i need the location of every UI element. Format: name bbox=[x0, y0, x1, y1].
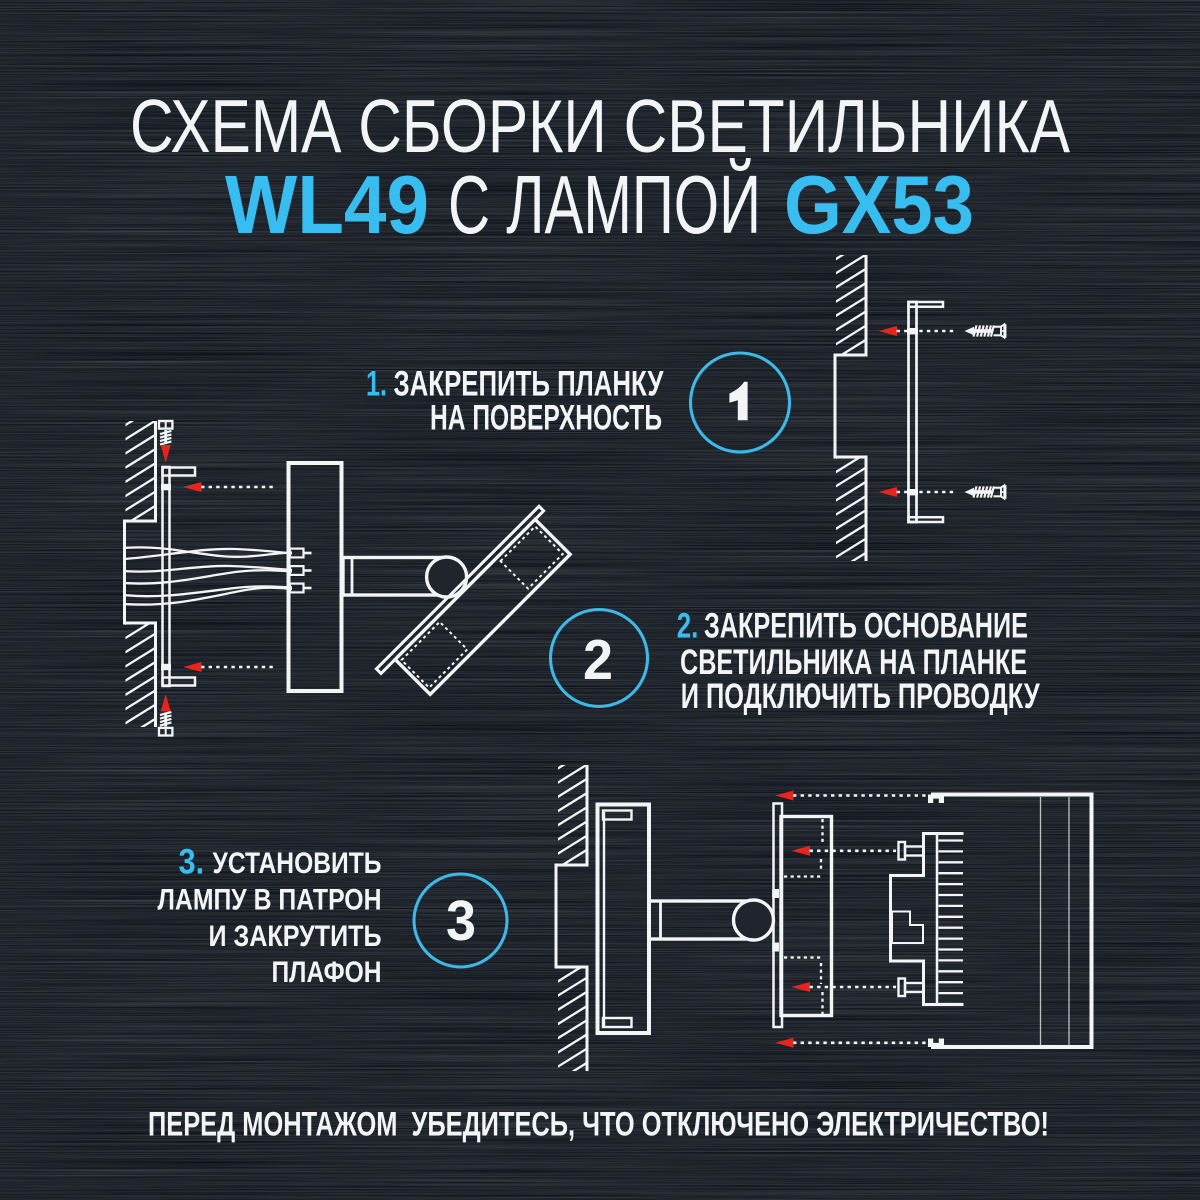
svg-text:ПЕРЕД МОНТАЖОМ УБЕДИТЕСЬ, ЧТО: ПЕРЕД МОНТАЖОМ УБЕДИТЕСЬ, ЧТО ОТКЛЮЧЕНО … bbox=[148, 1106, 1049, 1144]
svg-text:GX53: GX53 bbox=[784, 158, 974, 251]
svg-text:3: 3 bbox=[446, 889, 476, 952]
svg-text:НА ПОВЕРХНОСТЬ: НА ПОВЕРХНОСТЬ bbox=[430, 398, 662, 438]
svg-text:С ЛАМПОЙ: С ЛАМПОЙ bbox=[448, 158, 761, 251]
svg-text:ЗАКРЕПИТЬ ОСНОВАНИЕ: ЗАКРЕПИТЬ ОСНОВАНИЕ bbox=[704, 606, 1028, 646]
svg-text:2.: 2. bbox=[677, 606, 699, 646]
svg-text:2: 2 bbox=[583, 628, 613, 691]
svg-text:СХЕМА СБОРКИ СВЕТИЛЬНИКА: СХЕМА СБОРКИ СВЕТИЛЬНИКА bbox=[130, 84, 1070, 168]
svg-text:И ПОДКЛЮЧИТЬ ПРОВОДКУ: И ПОДКЛЮЧИТЬ ПРОВОДКУ bbox=[681, 676, 1041, 716]
svg-text:И ЗАКРУТИТЬ: И ЗАКРУТИТЬ bbox=[209, 920, 382, 953]
svg-text:ПЛАФОН: ПЛАФОН bbox=[272, 956, 382, 989]
svg-text:ЛАМПУ В ПАТРОН: ЛАМПУ В ПАТРОН bbox=[158, 884, 382, 917]
svg-text:WL49: WL49 bbox=[225, 158, 429, 251]
svg-text:1.: 1. bbox=[366, 364, 387, 404]
svg-text:3.: 3. bbox=[179, 842, 205, 882]
svg-text:УСТАНОВИТЬ: УСТАНОВИТЬ bbox=[213, 847, 382, 880]
